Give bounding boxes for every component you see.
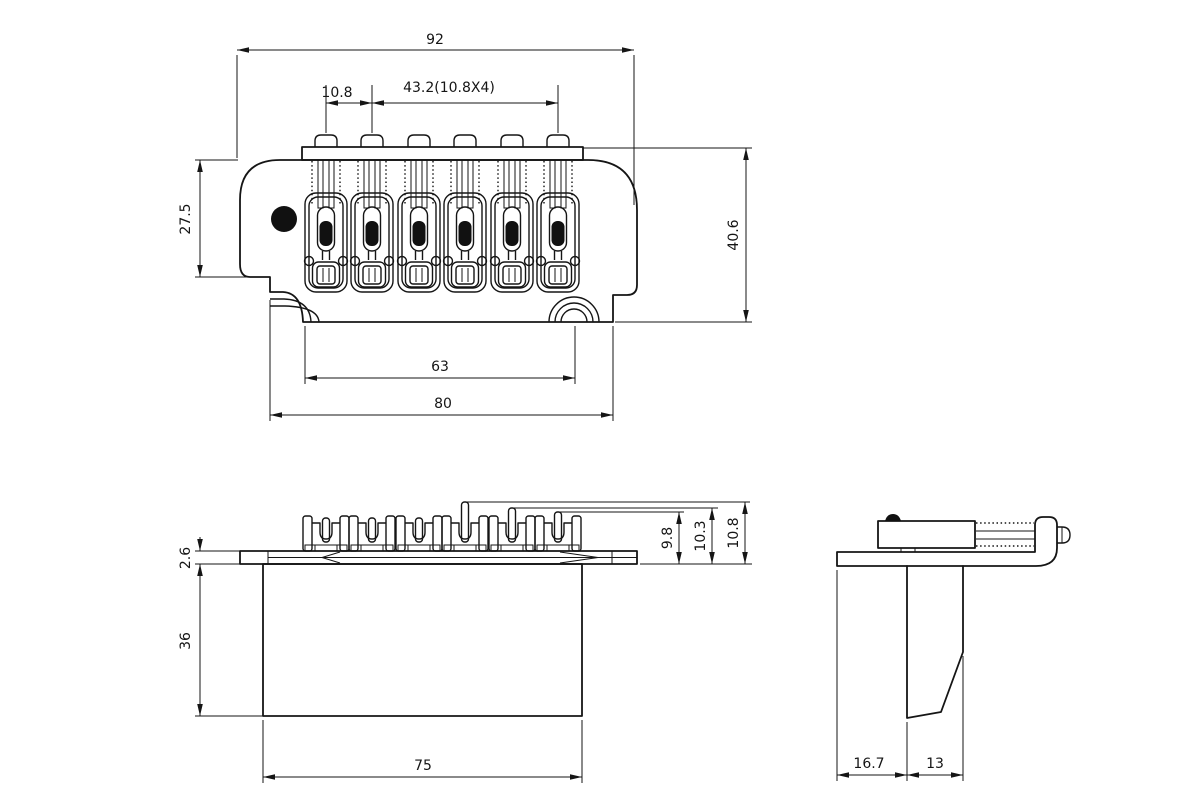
tremolo-block-front [263, 564, 582, 716]
dim-block-width: 75 [263, 720, 582, 783]
dim-string-pitch: 10.8 [321, 85, 372, 133]
dim-block-height: 36 [178, 564, 263, 716]
saddle-front-6 [535, 516, 581, 551]
front-view: 9.8 10.3 10.8 2.6 36 75 [178, 502, 752, 783]
left-bend-line-1 [270, 299, 311, 322]
dim-label-block-depth: 13 [926, 756, 944, 772]
saddle-top-5 [491, 160, 534, 292]
saddle-top-4 [444, 160, 487, 292]
dim-saddle-height-b: 10.3 [693, 508, 712, 564]
saddle-front-5 [489, 516, 535, 551]
technical-drawing: 92 10.8 43.2(10.8X4) 27.5 40.6 [0, 0, 1200, 800]
dim-bottom-edge-span: 63 [305, 326, 575, 384]
dim-label-string-span: 43.2(10.8X4) [403, 80, 495, 96]
saddle-top-2 [351, 160, 394, 292]
tremolo-block-side [907, 566, 963, 718]
intonation-screw-head [1057, 527, 1070, 543]
string-post-tab [408, 135, 430, 147]
string-post-tab [501, 135, 523, 147]
left-bend-line-2 [270, 306, 319, 322]
string-post-tab [454, 135, 476, 147]
side-view: 16.7 13 [837, 514, 1070, 781]
top-view: 92 10.8 43.2(10.8X4) 27.5 40.6 [178, 32, 752, 421]
saddle-top-6 [537, 160, 580, 292]
dim-label-plate-thickness: 2.6 [178, 547, 194, 569]
saddle-front-4 [442, 516, 488, 551]
dim-label-bottom-edge-span: 63 [431, 359, 449, 375]
string-post-tab [315, 135, 337, 147]
string-end [885, 514, 901, 521]
saddle-top-3 [398, 160, 441, 292]
dim-label-string-pitch: 10.8 [321, 85, 352, 101]
dim-label-overall-width: 92 [426, 32, 444, 48]
saddle-front-3 [396, 516, 442, 551]
dim-body-depth-right: 40.6 [583, 148, 752, 322]
saddle-mount-bar [302, 147, 583, 160]
right-bend-arc-3 [561, 309, 587, 322]
saddle-side [878, 521, 975, 548]
height-screw-pin-5 [509, 508, 516, 542]
saddle-top-1 [305, 160, 348, 292]
saddle-front-1 [303, 516, 349, 551]
dim-saddle-height-a: 9.8 [660, 512, 679, 564]
dim-plate-overhang: 16.7 [837, 570, 907, 781]
trem-arm-hole [271, 206, 297, 232]
dim-label-block-height: 36 [178, 632, 194, 650]
string-post-tabs [315, 135, 569, 147]
front-view-body [240, 551, 637, 716]
dim-label-body-depth-right: 40.6 [726, 219, 742, 250]
front-view-saddles [303, 502, 581, 551]
dim-string-span: 43.2(10.8X4) [372, 80, 558, 133]
dim-saddle-height-c: 10.8 [726, 502, 745, 564]
dim-label-saddle-height-a: 9.8 [660, 527, 676, 549]
dim-plate-thickness: 2.6 [178, 537, 242, 569]
dim-label-body-depth-left: 27.5 [178, 203, 194, 234]
top-view-body [240, 135, 637, 322]
dim-label-flange-width: 80 [434, 396, 452, 412]
dim-label-plate-overhang: 16.7 [853, 756, 884, 772]
side-view-body [837, 514, 1070, 718]
dim-label-saddle-height-b: 10.3 [693, 520, 709, 551]
height-screw-pin-6 [555, 512, 562, 542]
base-plate-side [837, 517, 1057, 566]
string-post-tab [547, 135, 569, 147]
dim-overall-width: 92 [237, 32, 634, 205]
height-screw-pin-4 [462, 502, 469, 542]
dim-body-depth-left: 27.5 [178, 160, 248, 277]
saddle-front-2 [349, 516, 395, 551]
dim-label-block-width: 75 [414, 758, 432, 774]
dim-label-saddle-height-c: 10.8 [726, 517, 742, 548]
top-view-saddles [305, 160, 580, 292]
string-post-tab [361, 135, 383, 147]
